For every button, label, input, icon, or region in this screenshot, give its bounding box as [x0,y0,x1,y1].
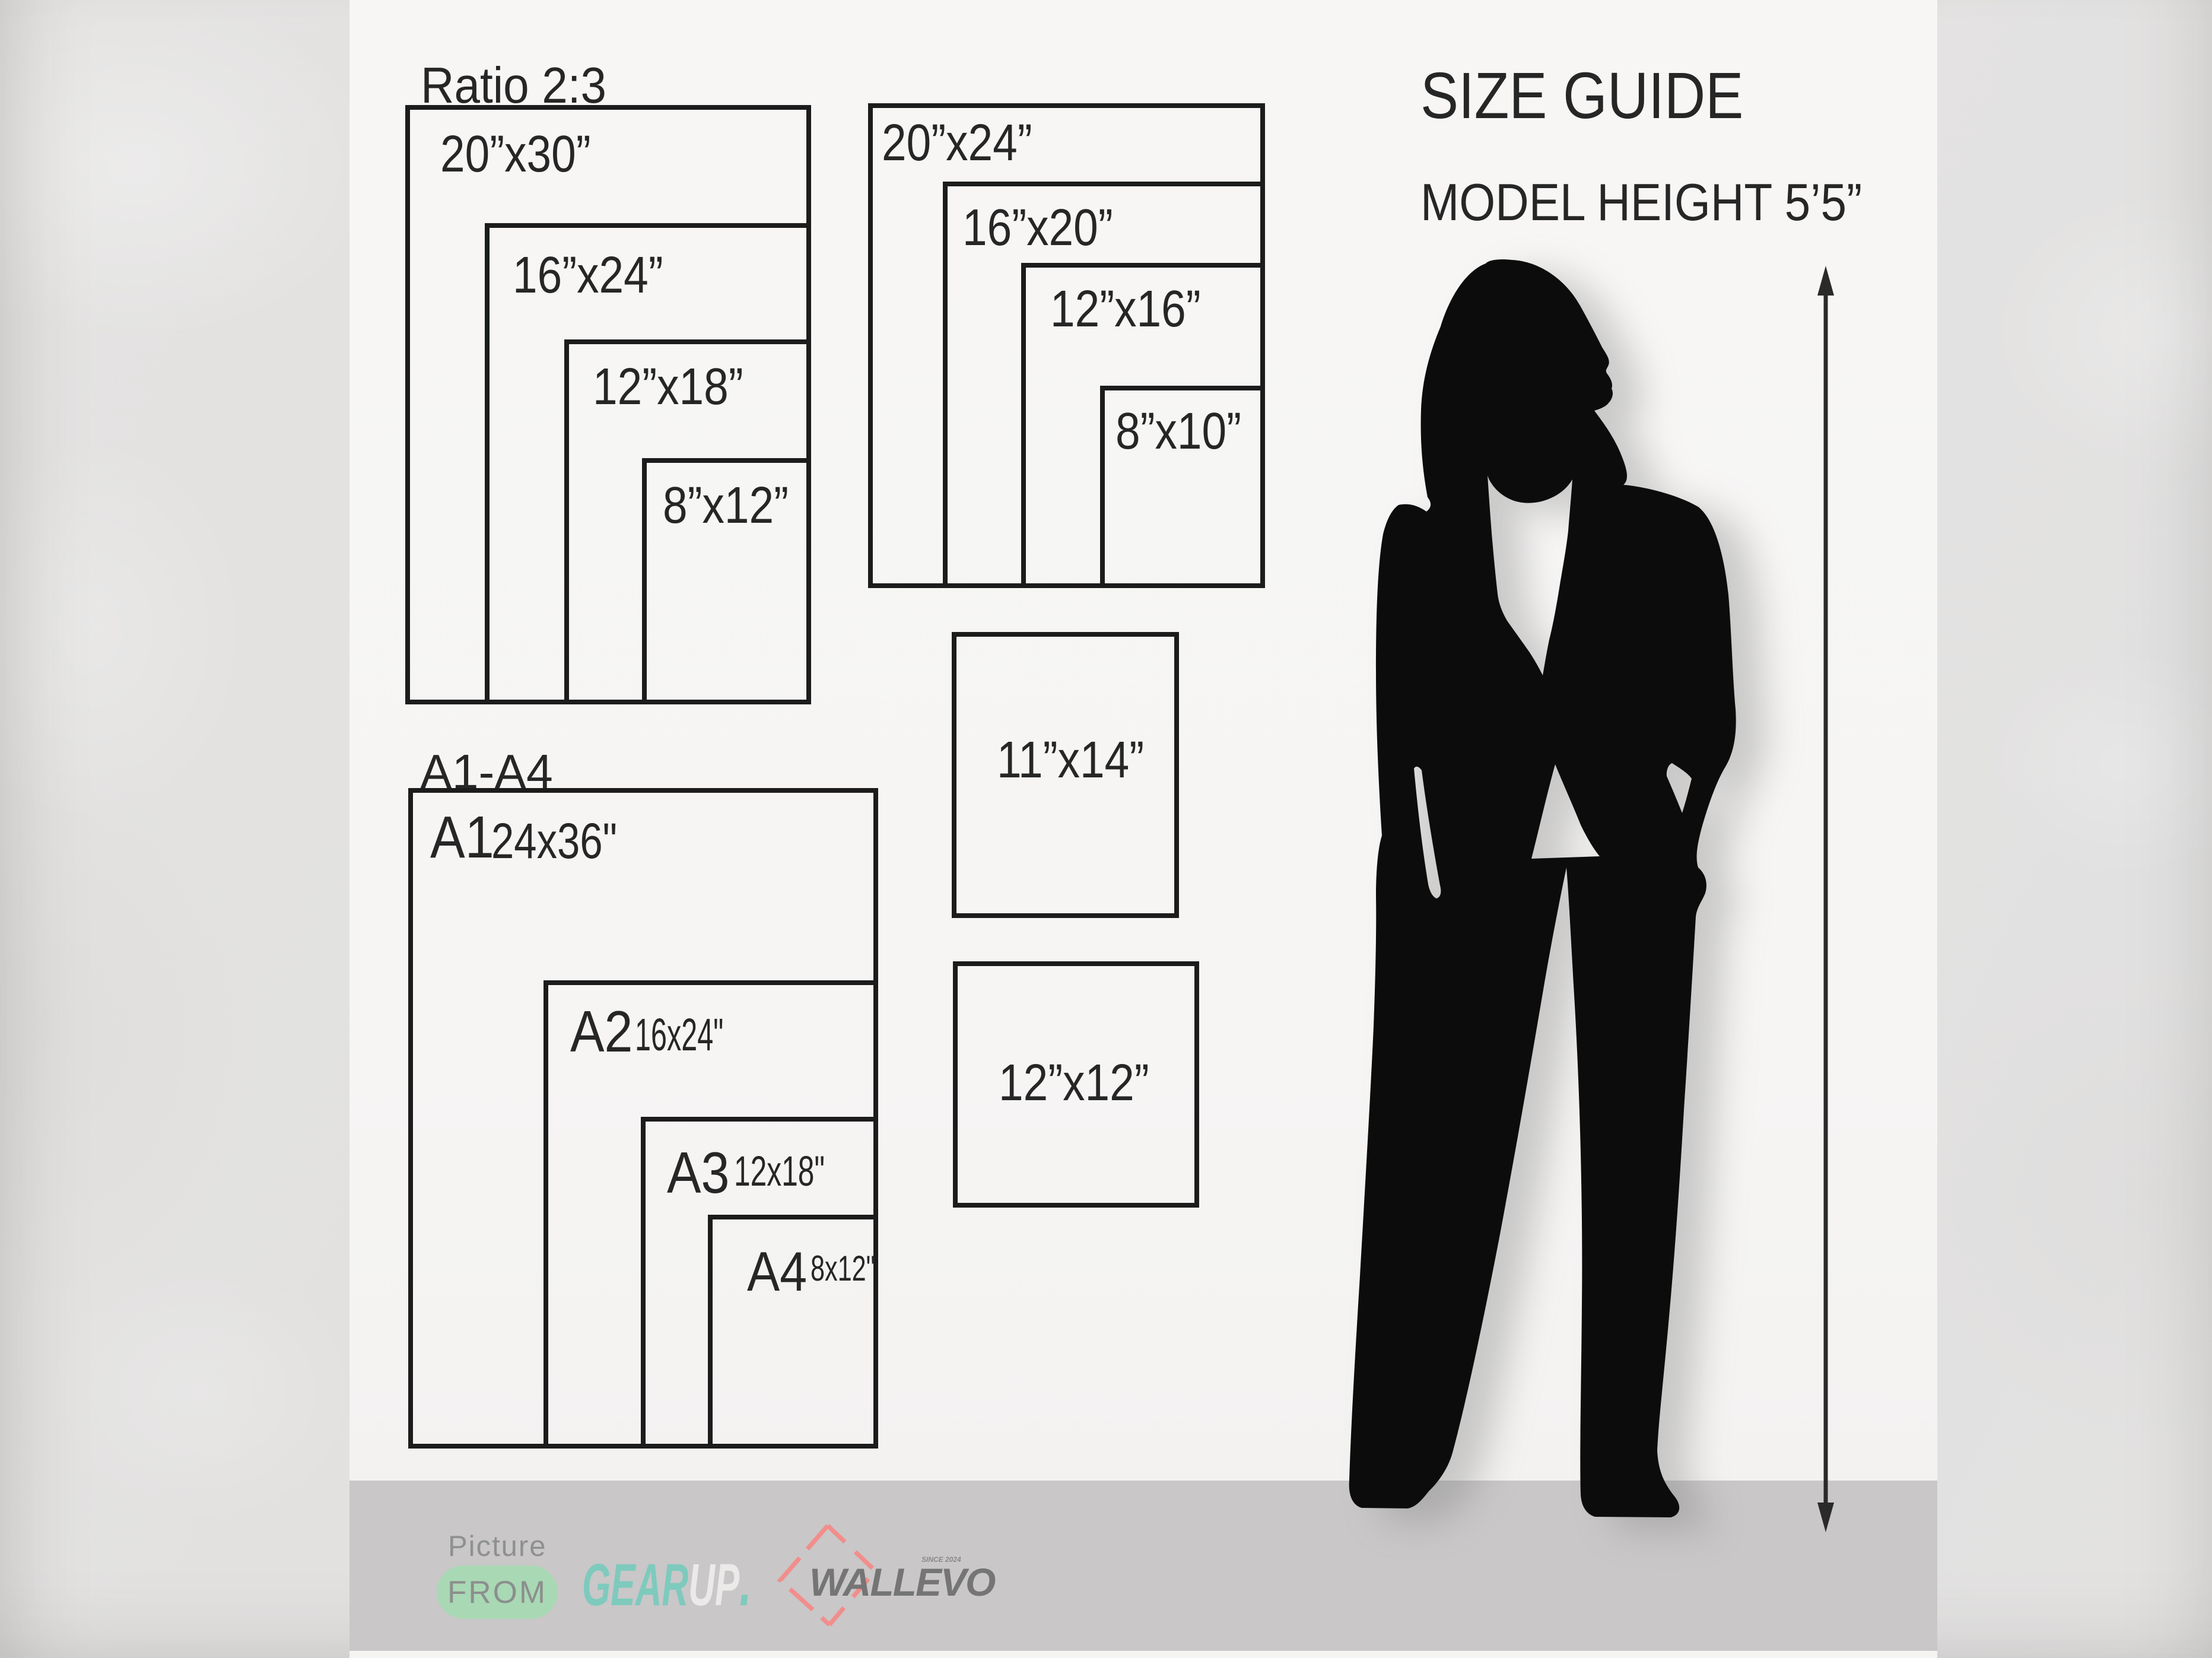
svg-text:WALLEVO: WALLEVO [809,1560,996,1604]
